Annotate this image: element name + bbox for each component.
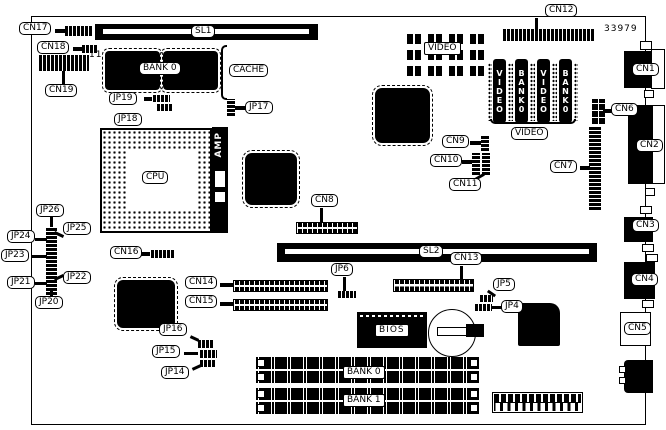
label-jp6: JP6 [331,263,353,276]
chip-qfp-mid [245,153,297,205]
leader-line [73,47,82,51]
leader-line [31,255,47,258]
connector-cn15 [233,299,328,311]
leader-line [580,166,590,170]
sip-pins [508,63,513,121]
simm-clip [257,359,265,367]
simm-clip [470,390,478,398]
label-jp16: JP16 [159,323,187,336]
board-part-number: 33979 [604,24,638,34]
sip-module-2: BANK0 [515,59,528,123]
simm-clip [470,359,478,367]
label-cn5: CN5 [624,322,651,335]
simm-clip [257,373,265,381]
leader-line [50,217,53,227]
label-jp24: JP24 [7,230,35,243]
label-cache: CACHE [229,64,268,77]
connector-terminal-block [492,392,583,413]
label-cn10: CN10 [430,154,462,167]
label-jp5: JP5 [493,278,515,291]
label-jp21: JP21 [7,276,35,289]
simm-clip [470,373,478,381]
jumper-cn9 [481,136,489,152]
leader-line [35,282,47,285]
label-jp15: JP15 [152,345,180,358]
chip-plcc-right [518,303,560,346]
connector-cn7 [589,127,601,211]
label-sl2: SL2 [419,245,443,258]
label-amp: AMP [214,132,224,158]
sip-module-1: VIDEO [493,59,506,123]
simm-clip [257,404,265,412]
leader-line [220,283,234,287]
connector-cn8 [296,222,358,234]
label-bios: BIOS [375,324,409,337]
jumper-jp17 [227,99,235,117]
sip-pins [530,63,535,121]
cache-brace [221,45,227,100]
jumper-jp4 [474,304,492,311]
motherboard-diagram: CN17 CN18 11 CN19 SL1 BANK 0 CACHE JP19 … [0,0,666,430]
leader-line [144,97,152,101]
leader-line [470,141,481,145]
leader-line [141,252,150,256]
label-cn13: CN13 [450,252,482,265]
connector-cn13 [393,279,474,292]
label-cn1: CN1 [632,63,659,76]
label-jp4: JP4 [501,300,523,313]
label-cn19: CN19 [45,84,77,97]
label-video-array: VIDEO [424,42,461,55]
leader-line [62,71,65,84]
label-cn2: CN2 [636,139,663,152]
label-jp23: JP23 [1,249,29,262]
connector-cn14 [233,280,328,292]
connector-cn16 [150,250,175,258]
leader-line [462,160,472,164]
label-jp18: JP18 [114,113,142,126]
label-cn8: CN8 [311,194,338,207]
label-cn14: CN14 [185,276,217,289]
label-bank1-simm: BANK 1 [343,394,385,407]
leader-line [343,277,346,291]
port-pin [619,377,626,384]
label-bank0-cache: BANK 0 [139,62,181,75]
label-jp26: JP26 [36,204,64,217]
jumper-cn10 [472,153,480,176]
chip-qfp-right [375,88,430,143]
edge-tab [642,300,654,308]
port-bottom-right [624,360,653,393]
jumper-jp5 [479,295,493,302]
jumper-jp19-b [156,104,172,111]
sip-pins [574,63,578,121]
label-cn16: CN16 [110,246,142,259]
label-cn6: CN6 [611,103,638,116]
leader-line [184,352,198,355]
bios-socket-mark [360,315,424,317]
edge-tab [646,254,658,262]
jumper-jp6 [337,291,356,298]
label-cn12: CN12 [545,4,577,17]
jumper-jp19-a [152,95,170,102]
label-jp22: JP22 [63,271,91,284]
label-jp25: JP25 [63,222,91,235]
label-cpu: CPU [142,171,168,184]
label-cn4: CN4 [631,273,658,286]
jumper-jp16 [197,340,214,348]
label-jp20: JP20 [35,296,63,309]
connector-cn12 [502,29,594,41]
label-jp17: JP17 [245,101,273,114]
battery-contact [466,324,484,337]
sip-module-3: VIDEO [537,59,550,123]
label-sl1: SL1 [191,25,215,38]
label-bank0-simm: BANK 0 [343,366,385,379]
edge-tab [642,244,654,252]
simm-clip [257,390,265,398]
edge-tab [644,90,654,98]
leader-line [320,208,323,222]
label-video-sip: VIDEO [511,127,548,140]
sip-module-4: BANK0 [559,59,572,123]
sip-pins [488,63,492,121]
amp-pad [214,191,226,203]
jumper-jp15 [199,350,217,358]
jumper-block-jp20-jp26 [46,227,57,296]
label-jp19: JP19 [109,92,137,105]
edge-tab [645,188,655,196]
connector-cn19 [38,55,89,71]
label-cn18: CN18 [37,41,69,54]
label-cn9: CN9 [442,135,469,148]
leader-line [35,238,47,241]
terminal-top-row [494,394,581,403]
label-cn3: CN3 [632,219,659,232]
amp-pad [214,170,226,188]
leader-line [55,29,65,33]
label-cn15: CN15 [185,295,217,308]
edge-tab [640,206,652,214]
leader-line [535,18,538,30]
pin-number-11: 11 [89,50,102,60]
chip-qfp-left [117,280,175,328]
simm-clip [470,404,478,412]
leader-line [460,266,463,279]
jumper-jp14 [199,360,215,367]
terminal-bottom-row [494,403,581,411]
connector-cn17 [64,26,92,36]
sip-pins [552,63,557,121]
leader-line [220,302,234,306]
label-cn7: CN7 [550,160,577,173]
battery-tab [437,327,469,336]
label-cn17: CN17 [19,22,51,35]
label-cn11: CN11 [449,178,481,191]
label-jp14: JP14 [161,366,189,379]
port-pin [619,366,626,373]
